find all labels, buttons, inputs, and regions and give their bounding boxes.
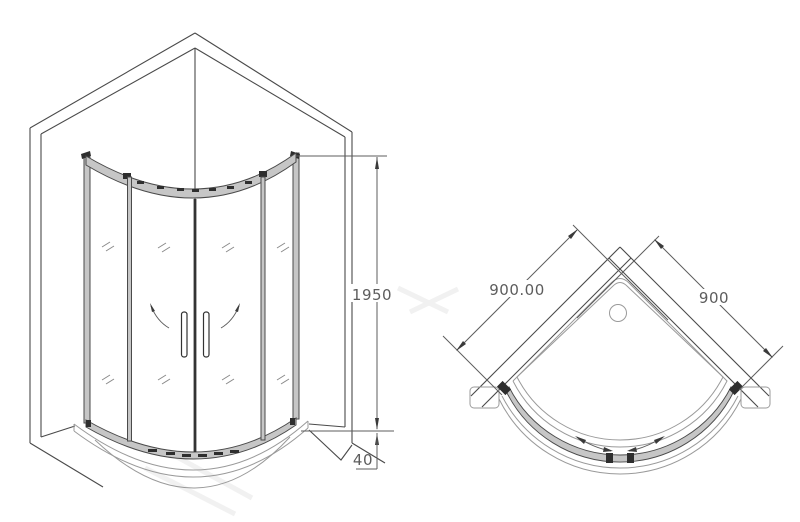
plan-glass-band bbox=[506, 387, 734, 462]
dim-label-tray-height: 40 bbox=[353, 451, 373, 469]
corner-walls bbox=[30, 33, 385, 487]
dim-label-glass-height: 1950 bbox=[352, 286, 392, 304]
drawing-canvas: 1950 40 bbox=[0, 0, 800, 522]
plan-tray-rim bbox=[513, 279, 727, 448]
dim-40: 40 bbox=[353, 433, 379, 469]
dim-label-side-left: 900.00 bbox=[489, 281, 545, 299]
plan-slide-arrows bbox=[575, 436, 665, 452]
door-meeting-stile bbox=[194, 199, 197, 452]
front-view: 1950 40 bbox=[30, 33, 394, 488]
plan-right-handle bbox=[627, 453, 634, 463]
dim-label-side-right: 900 bbox=[699, 289, 729, 307]
dim-900-left: 900.00 bbox=[443, 225, 668, 395]
right-door-handle bbox=[204, 312, 210, 357]
right-fixed-panel-frame bbox=[261, 177, 265, 440]
drain-icon bbox=[610, 305, 627, 322]
plan-view: 900.00 900 bbox=[443, 225, 783, 474]
left-door-handle bbox=[182, 312, 188, 357]
shower-enclosure-drawing: 1950 40 bbox=[0, 0, 800, 522]
right-post bbox=[293, 153, 299, 419]
left-fixed-panel-frame bbox=[128, 177, 132, 441]
watermark bbox=[145, 288, 458, 514]
left-post bbox=[84, 157, 90, 423]
plan-left-handle bbox=[606, 453, 613, 463]
